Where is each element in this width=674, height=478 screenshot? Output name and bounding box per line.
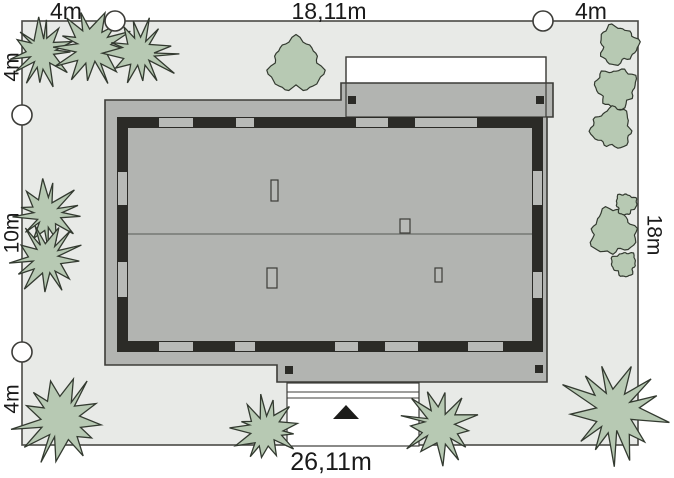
wall-window (533, 272, 542, 298)
wall-window (159, 342, 193, 351)
dim-top-right: 4m (575, 0, 607, 24)
wall-window (236, 118, 254, 127)
dim-left-bottom: 4m (0, 384, 23, 413)
wall-window (468, 342, 503, 351)
wall-window (415, 118, 477, 127)
chimney (348, 96, 356, 104)
wall-window (385, 342, 418, 351)
chimney (535, 365, 543, 373)
boundary-marker (533, 11, 553, 31)
wall-window (533, 171, 542, 205)
plan-drawing (9, 11, 669, 467)
roof-window (435, 268, 442, 282)
dim-top-left: 4m (50, 0, 82, 24)
dim-top-width: 18,11m (291, 0, 366, 24)
dim-left-top: 4m (0, 52, 23, 81)
roof-window (400, 219, 410, 233)
chimney (285, 366, 293, 374)
wall-window (118, 172, 127, 205)
wall-window (118, 262, 127, 297)
wall-window (235, 342, 255, 351)
dim-bottom-width: 26,11m (290, 448, 372, 476)
wall-window (159, 118, 193, 127)
site-plan-canvas: 4m 18,11m 4m 4m 10m 4m 18m 26,11m (0, 0, 674, 478)
roof-window (271, 180, 278, 201)
boundary-marker (105, 11, 125, 31)
boundary-marker (12, 105, 32, 125)
wall-window (335, 342, 358, 351)
site-plan-svg: 4m 18,11m 4m 4m 10m 4m 18m 26,11m (0, 0, 674, 478)
boundary-marker (12, 342, 32, 362)
wall-window (356, 118, 388, 127)
dim-left-middle: 10m (0, 213, 23, 254)
dim-right-depth: 18m (643, 215, 666, 256)
roof-window (267, 268, 277, 288)
chimney (536, 96, 544, 104)
